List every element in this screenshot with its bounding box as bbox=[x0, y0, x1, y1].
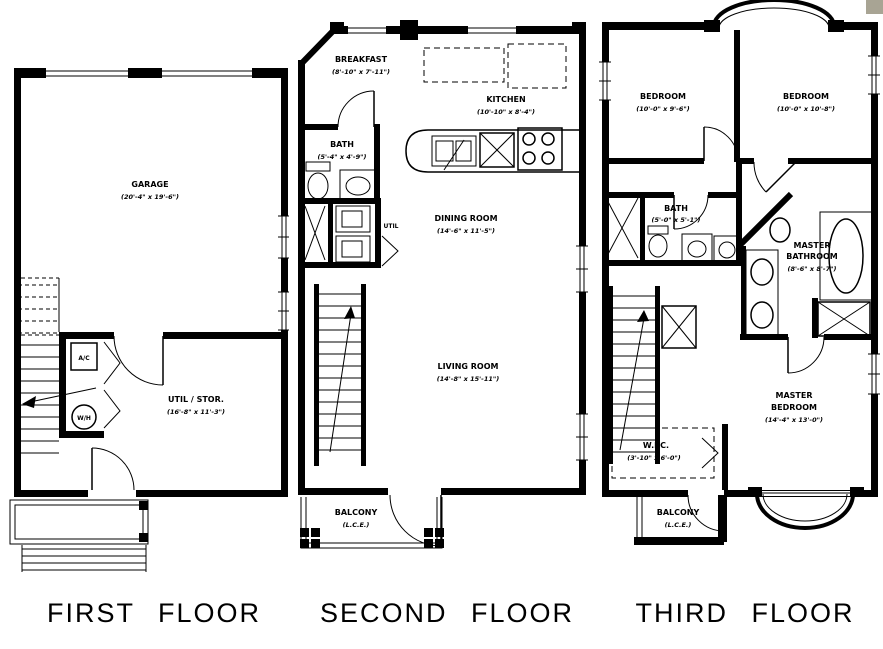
stairs-icon bbox=[14, 278, 96, 453]
stairs-icon-2f bbox=[314, 284, 366, 466]
toilet-icon bbox=[306, 162, 330, 199]
breakfast-room-dims: (8'-10" x 7'-11") bbox=[332, 68, 390, 76]
wh-label: W/H bbox=[77, 415, 91, 422]
master-bedroom-label-1: MASTER bbox=[776, 391, 813, 400]
ac-label: A/C bbox=[78, 355, 90, 362]
bifold-door-icon bbox=[382, 236, 398, 266]
floor-plan-page: A/C W/H GARAGE (20'-4" x bbox=[0, 0, 883, 649]
walk-in-closet: W.I.C. (3'-10" x 6'-0") bbox=[612, 424, 728, 490]
toilet-icon bbox=[770, 218, 790, 242]
shower-icon bbox=[812, 298, 870, 338]
garage-room-label: GARAGE bbox=[131, 180, 168, 189]
third-floor-plan: W.I.C. (3'-10" x 6'-0") BALCONY (L.C.E.)… bbox=[599, 0, 880, 628]
stairs-icon-3f bbox=[608, 286, 696, 464]
bay-window-top-icon bbox=[714, 0, 834, 26]
washer-dryer-icon bbox=[336, 206, 370, 262]
bedroom-right-label: BEDROOM bbox=[783, 92, 829, 101]
balcony-2f-dims: (L.C.E.) bbox=[343, 521, 370, 529]
master-bath-label-1: MASTER bbox=[794, 241, 831, 250]
util-stor-room-label: UTIL / STOR. bbox=[168, 395, 224, 404]
master-bath-dims: (8'-6" x 8'-7") bbox=[788, 265, 837, 273]
second-floor-plan: UTIL bbox=[298, 20, 588, 628]
living-room-dims: (14'-8" x 15'-11") bbox=[437, 375, 499, 383]
mechanical-closet: A/C W/H bbox=[59, 332, 120, 438]
balcony-2f: BALCONY (L.C.E.) bbox=[300, 495, 444, 548]
double-sink-vanity-icon bbox=[746, 250, 778, 336]
floor-plan-drawing: A/C W/H GARAGE (20'-4" x bbox=[0, 0, 883, 649]
first-floor-plan: A/C W/H GARAGE (20'-4" x bbox=[10, 68, 290, 628]
breakfast-room-label: BREAKFAST bbox=[335, 55, 388, 64]
first-floor-walls bbox=[14, 68, 288, 497]
bath-3f-dims: (5'-0" x 5'-1") bbox=[652, 216, 701, 224]
util-closet-2f: UTIL bbox=[298, 198, 399, 268]
dishwasher-icon bbox=[480, 133, 514, 167]
bifold-door-icon bbox=[702, 438, 718, 468]
dining-room-dims: (14'-6" x 11'-5") bbox=[437, 227, 495, 235]
sink-vanity-icon bbox=[340, 170, 376, 202]
util-closet-label: UTIL bbox=[383, 223, 398, 230]
porch-steps-icon bbox=[10, 500, 148, 572]
third-floor-title: THIRD FLOOR bbox=[635, 598, 854, 628]
ac-unit-icon: A/C bbox=[71, 343, 97, 370]
bay-window-bottom-icon bbox=[757, 494, 853, 528]
util-stor-room-dims: (16'-8" x 11'-3") bbox=[167, 408, 225, 416]
kitchen-room-dims: (10'-10" x 8'-4") bbox=[477, 108, 535, 116]
garage-door-arc-icon bbox=[114, 336, 163, 385]
wic-dims: (3'-10" x 6'-0") bbox=[627, 454, 680, 462]
bedroom-left-dims: (10'-0" x 9'-6") bbox=[636, 105, 689, 113]
bath-2f-label: BATH bbox=[330, 140, 354, 149]
master-bath-label-2: BATHROOM bbox=[786, 252, 838, 261]
balcony-2f-label: BALCONY bbox=[335, 508, 378, 517]
kitchen-sink-icon bbox=[432, 136, 476, 170]
garage-room-dims: (20'-4" x 19'-6") bbox=[121, 193, 179, 201]
toilet-icon bbox=[648, 226, 668, 257]
master-bedroom-label-2: BEDROOM bbox=[771, 403, 817, 412]
bath-3f-label: BATH bbox=[664, 204, 688, 213]
balcony-3f-label: BALCONY bbox=[657, 508, 700, 517]
balcony-3f-dims: (L.C.E.) bbox=[665, 521, 692, 529]
second-floor-title: SECOND FLOOR bbox=[320, 598, 574, 628]
sink-vanity-icon bbox=[682, 234, 712, 264]
water-heater-icon: W/H bbox=[72, 405, 96, 429]
balcony-3f: BALCONY (L.C.E.) bbox=[634, 495, 727, 545]
master-bedroom-dims: (14'-4" x 13'-0") bbox=[765, 416, 823, 424]
dining-room-label: DINING ROOM bbox=[434, 214, 497, 223]
scan-artifact-mark bbox=[866, 0, 883, 14]
kitchen-room-label: KITCHEN bbox=[486, 95, 525, 104]
wic-label: W.I.C. bbox=[643, 441, 669, 450]
bedroom-right-dims: (10'-0" x 10'-8") bbox=[777, 105, 835, 113]
entry-door-arc-icon bbox=[92, 448, 134, 490]
master-bathroom bbox=[739, 194, 878, 373]
living-room-label: LIVING ROOM bbox=[437, 362, 498, 371]
second-floor-walls bbox=[298, 20, 586, 495]
stove-icon bbox=[518, 128, 562, 170]
bath-2f-dims: (5'-4" x 4'-9") bbox=[318, 153, 367, 161]
first-floor-title: FIRST FLOOR bbox=[47, 598, 261, 628]
bedroom-left-label: BEDROOM bbox=[640, 92, 686, 101]
